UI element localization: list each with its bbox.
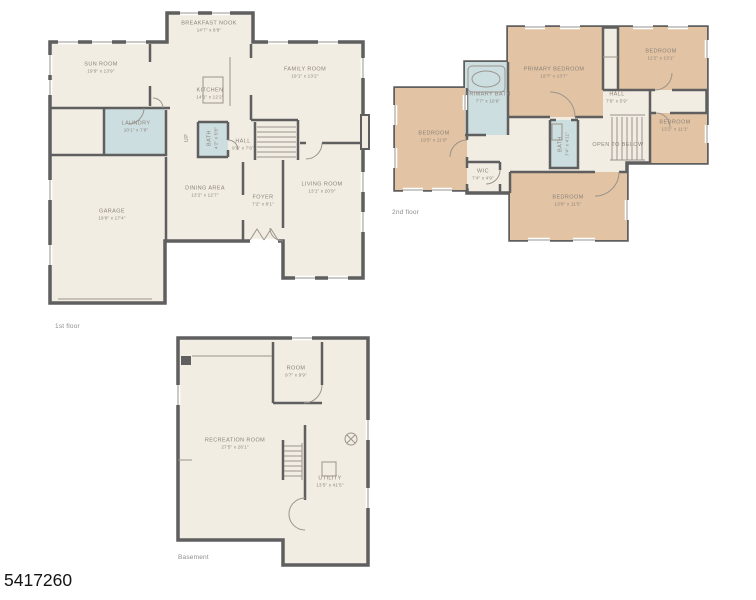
room-dimensions: 4'2" x 5'8" <box>214 127 221 149</box>
room-label-wic: WIC7'4" x 4'9" <box>472 168 494 183</box>
room-label-bath: BATH4'2" x 5'8" <box>206 127 221 149</box>
room-label-bedroom: BEDROOM19'5" x 11'9" <box>418 130 449 145</box>
room-name: KITCHEN <box>196 87 223 95</box>
room-label-bedroom: BEDROOM13'2" x 11'1" <box>659 119 690 134</box>
room-name: WIC <box>472 168 494 176</box>
room-name: SUN ROOM <box>84 61 117 69</box>
room-label-recreation-room: RECREATION ROOM27'5" x 26'1" <box>205 437 265 452</box>
floor-caption-basement: Basement <box>178 554 209 561</box>
room-label-laundry: LAUNDRY10'1" x 7'8" <box>122 120 151 135</box>
room-name: BEDROOM <box>418 130 449 138</box>
room-name: BATH <box>206 127 214 149</box>
room-name: UTILITY <box>316 475 343 483</box>
room-name: FOYER <box>252 194 274 202</box>
floor-caption-1st-floor: 1st floor <box>55 323 80 330</box>
room-dimensions: 9'9" x 7'6" <box>232 146 254 153</box>
floor-caption-2nd-floor: 2nd floor <box>392 209 419 216</box>
room-label-up: UP <box>183 134 191 142</box>
room-name: BREAKFAST NOOK <box>181 20 237 28</box>
room-name: BATH <box>557 132 565 156</box>
room-dimensions: 27'5" x 26'1" <box>205 445 265 452</box>
room-dimensions: 14'7" x 8'8" <box>181 28 237 35</box>
room-label-primary-bedroom: PRIMARY BEDROOM19'7" x 13'7" <box>524 66 585 81</box>
room-label-open-to-below: OPEN TO BELOW <box>592 141 643 149</box>
room-dimensions: 19'7" x 13'7" <box>524 74 585 81</box>
room-name: ROOM <box>285 365 307 373</box>
room-name: LIVING ROOM <box>301 181 342 189</box>
room-dimensions: 11'2" x 13'1" <box>645 56 676 63</box>
room-dimensions: 19'1" x 13'2" <box>284 74 326 81</box>
room-name: LAUNDRY <box>122 120 151 128</box>
room-dimensions: 13'8" x 11'5" <box>552 202 583 209</box>
room-name: PRIMARY BEDROOM <box>524 66 585 74</box>
room-dimensions: 14'1" x 12'2" <box>196 95 223 102</box>
room-label-hall: HALL7'6" x 5'9" <box>606 91 628 106</box>
room-dimensions: 19'8" x 17'4" <box>98 216 125 223</box>
listing-id: 5417260 <box>4 570 72 591</box>
room-name: RECREATION ROOM <box>205 437 265 445</box>
room-name: PRIMARY BATH <box>465 91 510 99</box>
room-label-sun-room: SUN ROOM19'9" x 13'9" <box>84 61 117 76</box>
room-dimensions: 13'2" x 11'1" <box>659 127 690 134</box>
room-name: BEDROOM <box>552 194 583 202</box>
room-name: FAMILY ROOM <box>284 66 326 74</box>
room-dimensions: 10'1" x 7'8" <box>122 128 151 135</box>
first-floor-plan <box>50 13 369 303</box>
room-name: BEDROOM <box>659 119 690 127</box>
room-label-dining-area: DINING AREA13'2" x 12'7" <box>185 185 225 200</box>
room-name: DINING AREA <box>185 185 225 193</box>
floorplan-page: { "meta": { "listing_id": "5417260" }, "… <box>0 0 756 600</box>
room-dimensions: 7'4" x 4'11" <box>565 132 572 156</box>
room-label-breakfast-nook: BREAKFAST NOOK14'7" x 8'8" <box>181 20 237 35</box>
room-dimensions: 13'5" x 41'5" <box>316 483 343 490</box>
room-label-bedroom: BEDROOM11'2" x 13'1" <box>645 48 676 63</box>
floorplan-drawing <box>0 0 756 600</box>
room-name: BEDROOM <box>645 48 676 56</box>
room-label-living-room: LIVING ROOM13'1" x 20'9" <box>301 181 342 196</box>
room-label-bath: BATH7'4" x 4'11" <box>557 132 572 156</box>
room-label-room: ROOM9'7" x 9'9" <box>285 365 307 380</box>
room-dimensions: 7'4" x 4'9" <box>472 176 494 183</box>
room-dimensions: 9'7" x 9'9" <box>285 373 307 380</box>
room-name: OPEN TO BELOW <box>592 141 643 149</box>
room-dimensions: 13'2" x 12'7" <box>185 193 225 200</box>
room-label-bedroom: BEDROOM13'8" x 11'5" <box>552 194 583 209</box>
room-label-primary-bath: PRIMARY BATH7'7" x 10'6" <box>465 91 510 106</box>
basement-plan <box>178 338 368 565</box>
room-dimensions: 7'7" x 10'6" <box>465 99 510 106</box>
room-label-utility: UTILITY13'5" x 41'5" <box>316 475 343 490</box>
room-label-family-room: FAMILY ROOM19'1" x 13'2" <box>284 66 326 81</box>
room-dimensions: 19'9" x 13'9" <box>84 69 117 76</box>
room-dimensions: 7'6" x 5'9" <box>606 99 628 106</box>
fireplace <box>361 115 369 149</box>
room-name: UP <box>183 134 191 142</box>
room-label-kitchen: KITCHEN14'1" x 12'2" <box>196 87 223 102</box>
room-name: HALL <box>606 91 628 99</box>
room-label-hall: HALL9'9" x 7'6" <box>232 138 254 153</box>
room-dimensions: 7'2" x 8'1" <box>252 202 274 209</box>
floorplan-canvas: BREAKFAST NOOK14'7" x 8'8"SUN ROOM19'9" … <box>0 0 756 600</box>
chimney <box>181 356 191 365</box>
room-name: GARAGE <box>98 208 125 216</box>
room-dimensions: 13'1" x 20'9" <box>301 189 342 196</box>
room-label-garage: GARAGE19'8" x 17'4" <box>98 208 125 223</box>
room-dimensions: 19'5" x 11'9" <box>418 138 449 145</box>
room-name: HALL <box>232 138 254 146</box>
room-label-foyer: FOYER7'2" x 8'1" <box>252 194 274 209</box>
